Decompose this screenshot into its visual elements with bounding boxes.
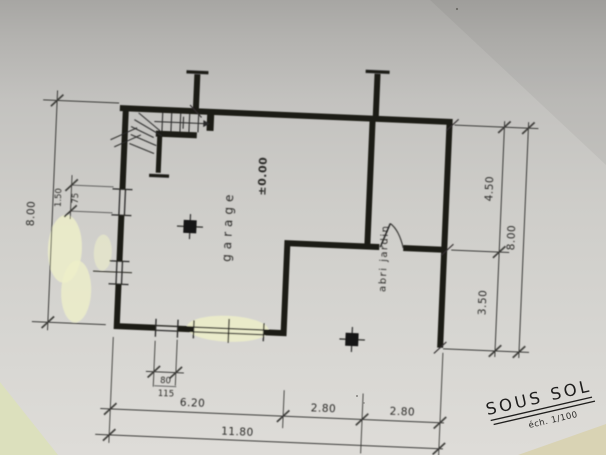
- floor-plan-photo: 8.00 1.50 75 4.50 3.50 8.00 6.20 2.80 2.…: [0, 0, 606, 455]
- stair-wall-cap: [149, 175, 169, 176]
- dust-speck: [363, 402, 364, 403]
- wall-garage-right: [284, 240, 288, 333]
- dim-label-right-overall: 8.00: [505, 225, 518, 251]
- dim-label-left-window-height: 75: [71, 193, 81, 204]
- dim-label-bottom-window-height: 115: [158, 389, 175, 400]
- stub-cap: [366, 71, 390, 72]
- dust-speck: [456, 8, 458, 10]
- floor-plan-svg: 8.00 1.50 75 4.50 3.50 8.00 6.20 2.80 2.…: [0, 0, 606, 455]
- dim-label-bottom-seg3: 2.80: [389, 406, 415, 419]
- stair-side-wall: [156, 134, 197, 136]
- dim-label-left-overall: 8.00: [25, 201, 38, 227]
- dim-label-bottom-overall: 11.80: [221, 426, 254, 439]
- wall-stub-right: [376, 74, 378, 118]
- stair-newel-wall: [210, 112, 211, 131]
- level-label: ±0.00: [255, 156, 270, 195]
- wall-stub-left: [196, 74, 198, 110]
- dim-label-left-window-width: 1.50: [54, 188, 65, 207]
- stub-cap: [186, 72, 208, 73]
- dim-label-right-top: 4.50: [483, 176, 496, 202]
- dim-label-right-bottom: 3.50: [477, 290, 490, 316]
- dim-label-bottom-seg2: 2.80: [311, 402, 337, 415]
- dust-speck: [356, 395, 358, 397]
- stair-inner-wall: [158, 137, 160, 173]
- dim-label-bottom-seg1: 6.20: [180, 397, 206, 410]
- dim-label-bottom-window-width: 80: [160, 376, 171, 386]
